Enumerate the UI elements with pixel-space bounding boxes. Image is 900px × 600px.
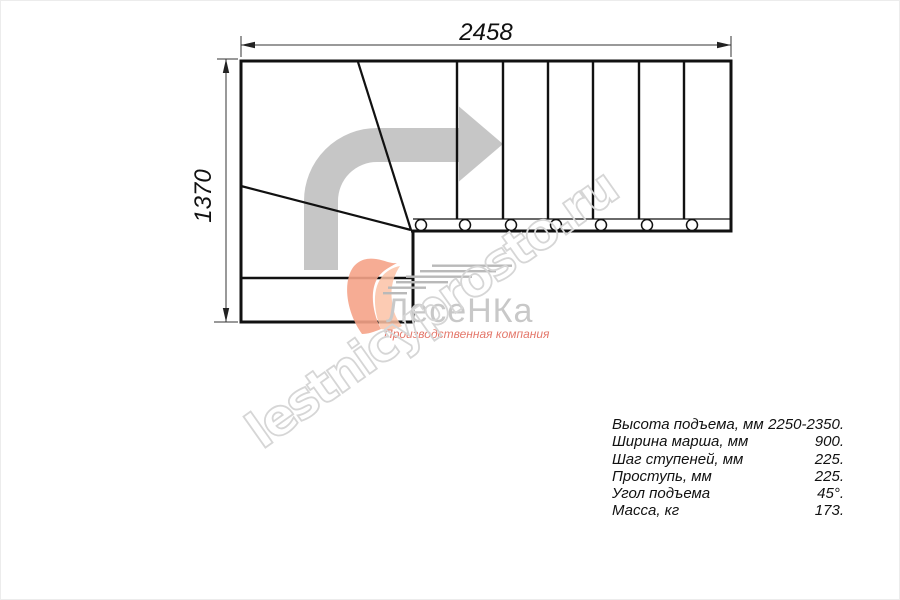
- speed-line: [420, 270, 496, 272]
- speed-line: [396, 281, 448, 283]
- spec-label: Высота подъема, мм: [612, 416, 764, 433]
- logo-speed-lines-icon: [383, 265, 512, 295]
- spec-value: 225.: [815, 451, 844, 468]
- spec-row: Высота подъема, мм 2250-2350.: [612, 416, 844, 433]
- speed-line: [432, 265, 512, 267]
- spec-label: Масса, кг: [612, 502, 679, 519]
- spec-row: Шаг ступеней, мм 225.: [612, 451, 844, 468]
- spec-label: Проступь, мм: [612, 468, 712, 485]
- speed-line: [406, 276, 472, 278]
- logo-subtitle-text: Производственная компания: [384, 327, 549, 341]
- spec-row: Масса, кг 173.: [612, 502, 844, 519]
- spec-value: 225.: [815, 468, 844, 485]
- specs-table: Высота подъема, мм 2250-2350. Ширина мар…: [612, 416, 844, 520]
- spec-value: 2250-2350.: [768, 416, 844, 433]
- spec-label: Шаг ступеней, мм: [612, 451, 743, 468]
- spec-label: Угол подъема: [612, 485, 710, 502]
- staircase-drawing-page: 2458 1370 ЛесеНКа Производственная компа…: [0, 0, 900, 600]
- spec-value: 173.: [815, 502, 844, 519]
- spec-row: Ширина марша, мм 900.: [612, 433, 844, 450]
- logo-brand-text: ЛесеНКа: [386, 294, 533, 328]
- spec-value: 900.: [815, 433, 844, 450]
- spec-value: 45°.: [817, 485, 844, 502]
- spec-row: Проступь, мм 225.: [612, 468, 844, 485]
- speed-line: [388, 287, 426, 289]
- spec-label: Ширина марша, мм: [612, 433, 748, 450]
- spec-row: Угол подъема 45°.: [612, 485, 844, 502]
